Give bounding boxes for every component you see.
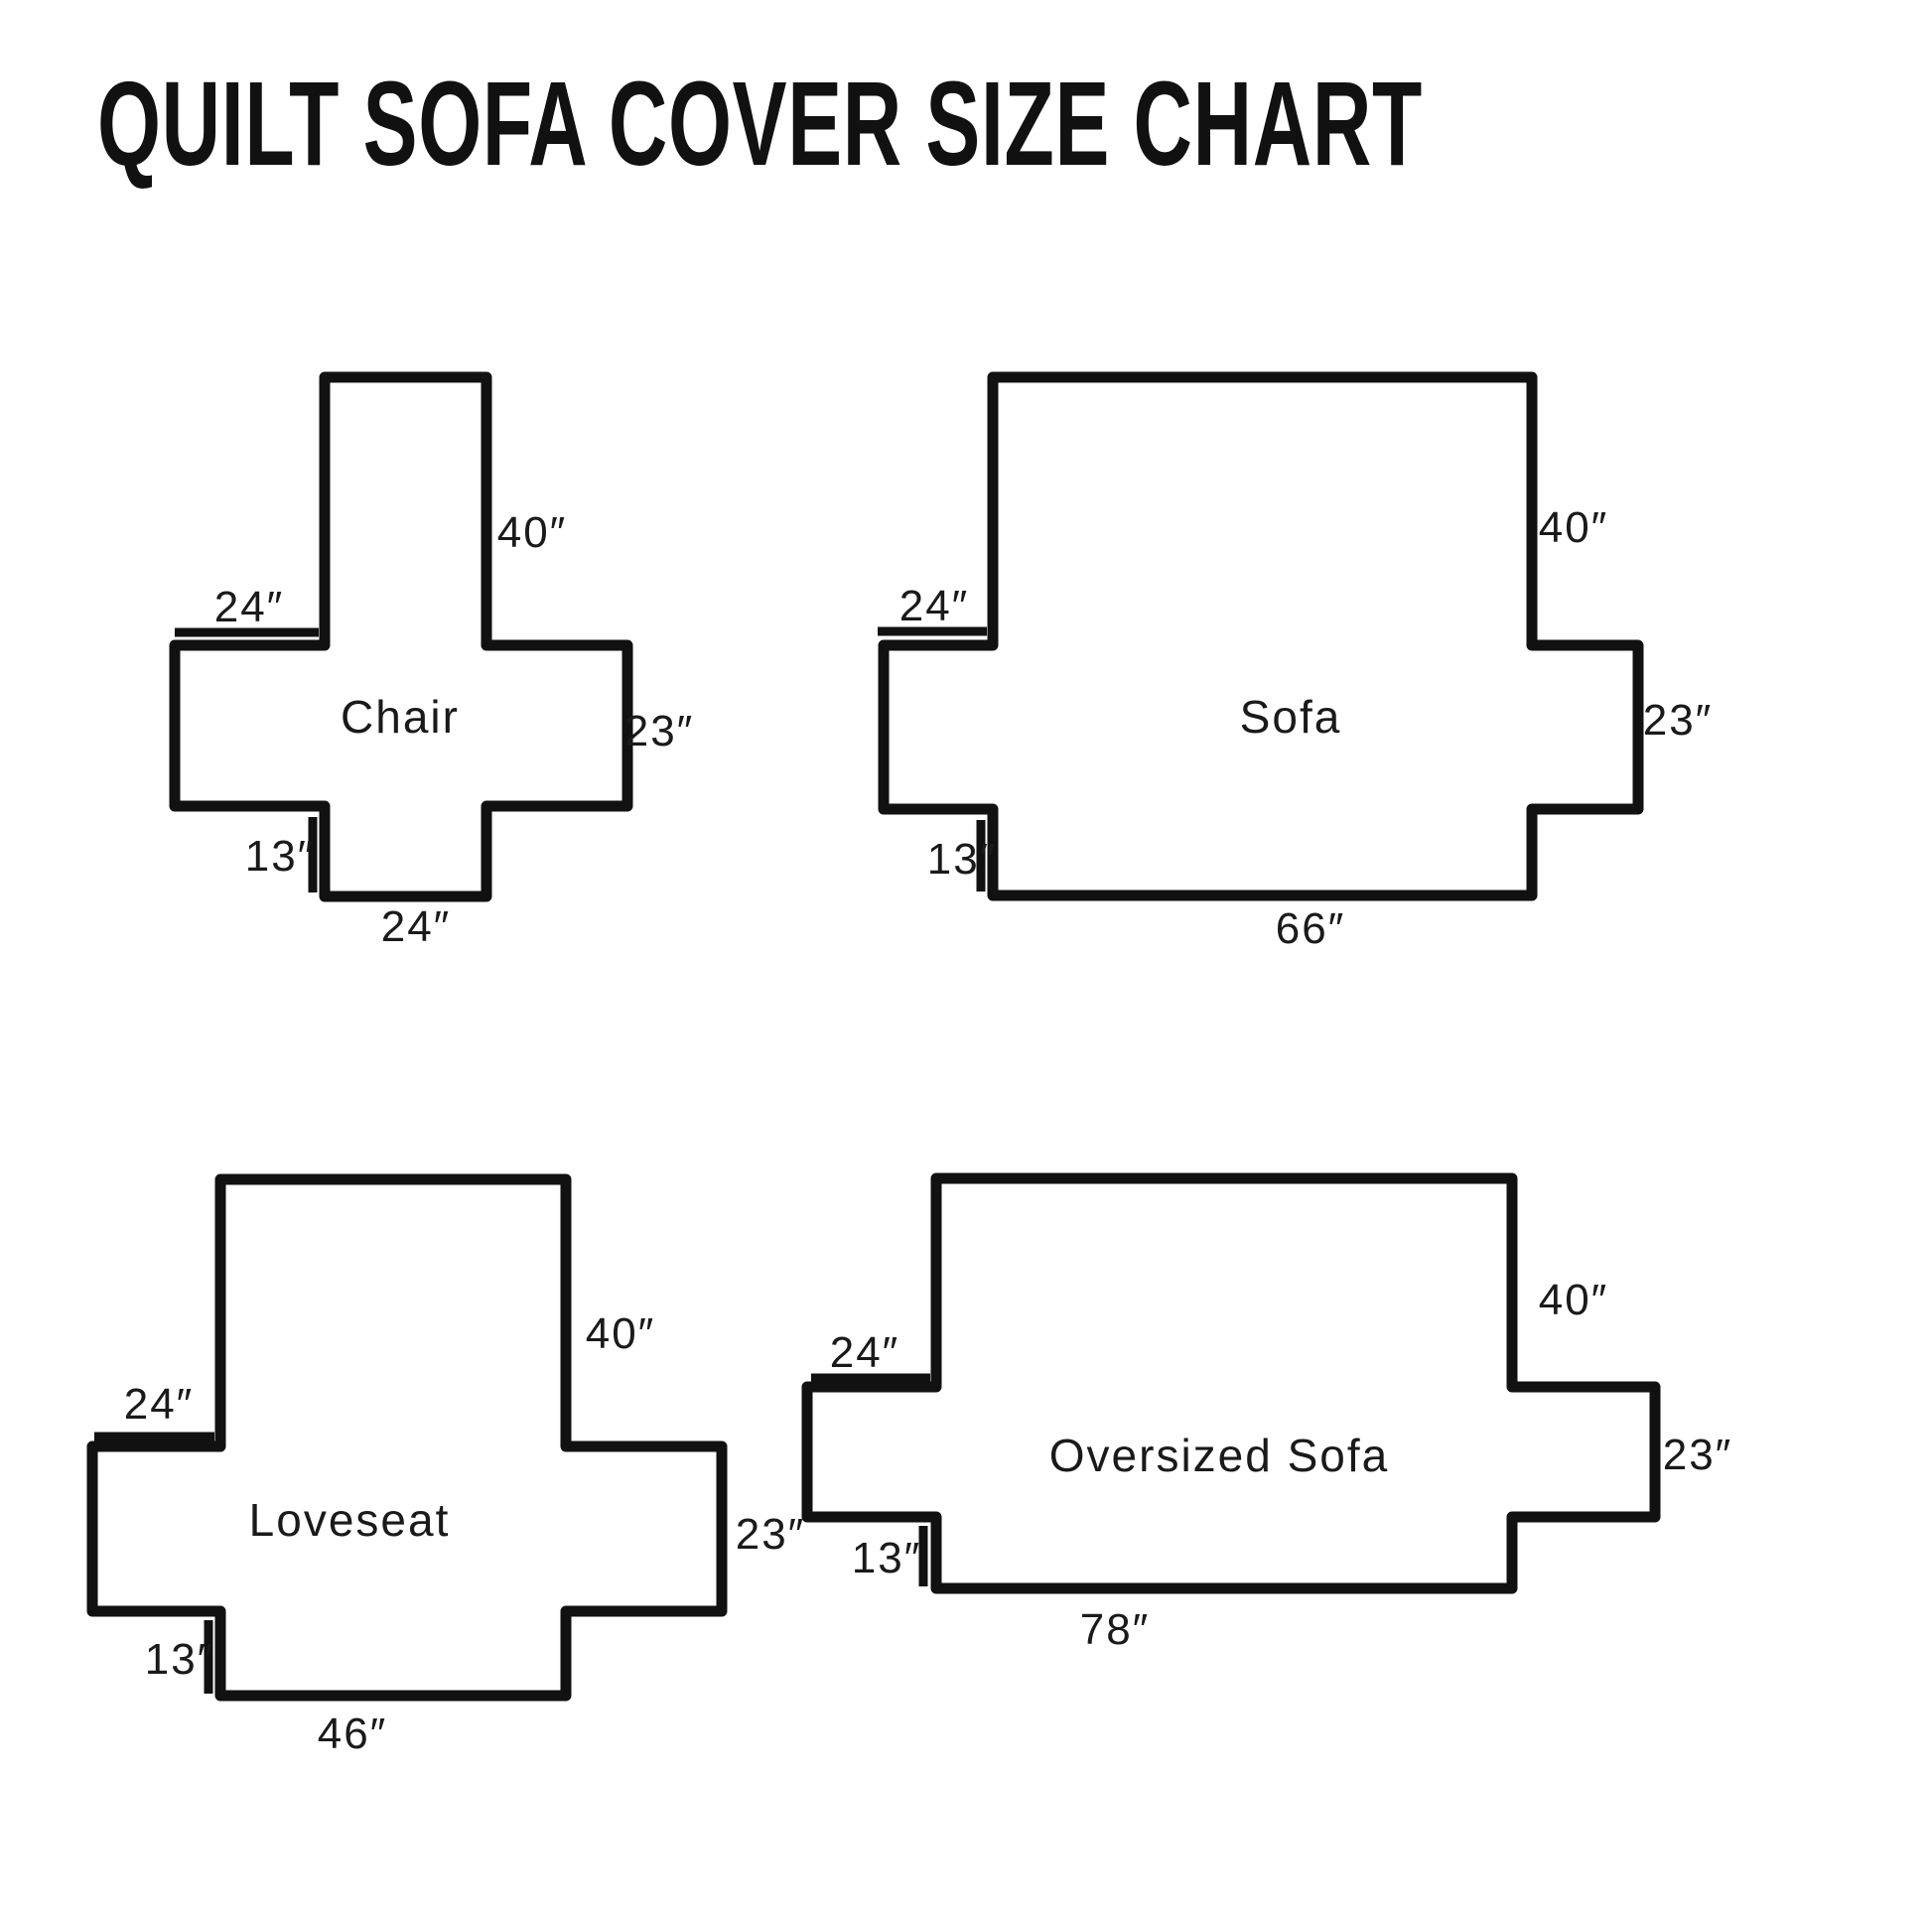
sofa-arm-top-width-label: 24″ xyxy=(899,585,970,628)
loveseat-name-label: Loveseat xyxy=(249,1497,451,1543)
chair-front-drop-label: 13″ xyxy=(245,835,316,879)
oversized-sofa-arm-top-width-label: 24″ xyxy=(830,1331,900,1375)
chair-arm-top-width-label: 24″ xyxy=(214,586,285,629)
cover-diagrams-canvas xyxy=(0,0,1932,1918)
oversized-sofa-back-height-label: 40″ xyxy=(1539,1279,1609,1322)
sofa-name-label: Sofa xyxy=(1240,694,1342,740)
quilt-sofa-cover-size-chart: QUILT SOFA COVER SIZE CHART Chair 40″ 24… xyxy=(0,0,1932,1918)
chair-seat-width-label: 24″ xyxy=(381,905,452,949)
loveseat-back-height-label: 40″ xyxy=(586,1312,656,1356)
oversized-sofa-side-height-label: 23″ xyxy=(1663,1434,1733,1477)
oversized-sofa-name-label: Oversized Sofa xyxy=(1049,1433,1389,1478)
chair-back-height-label: 40″ xyxy=(497,511,568,555)
sofa-front-drop-label: 13″ xyxy=(927,838,998,882)
sofa-back-height-label: 40″ xyxy=(1539,506,1609,550)
oversized-sofa-outline xyxy=(807,1178,1655,1588)
loveseat-side-height-label: 23″ xyxy=(736,1513,806,1557)
oversized-sofa-front-drop-label: 13″ xyxy=(852,1537,922,1580)
loveseat-front-drop-label: 13″ xyxy=(145,1638,215,1682)
loveseat-arm-top-width-label: 24″ xyxy=(124,1383,195,1427)
chair-name-label: Chair xyxy=(341,694,460,740)
sofa-side-height-label: 23″ xyxy=(1643,699,1714,743)
chair-side-height-label: 23″ xyxy=(624,710,695,753)
oversized-sofa-seat-width-label: 78″ xyxy=(1080,1608,1151,1652)
sofa-outline xyxy=(884,377,1638,895)
loveseat-seat-width-label: 46″ xyxy=(318,1712,388,1756)
sofa-seat-width-label: 66″ xyxy=(1276,907,1346,951)
